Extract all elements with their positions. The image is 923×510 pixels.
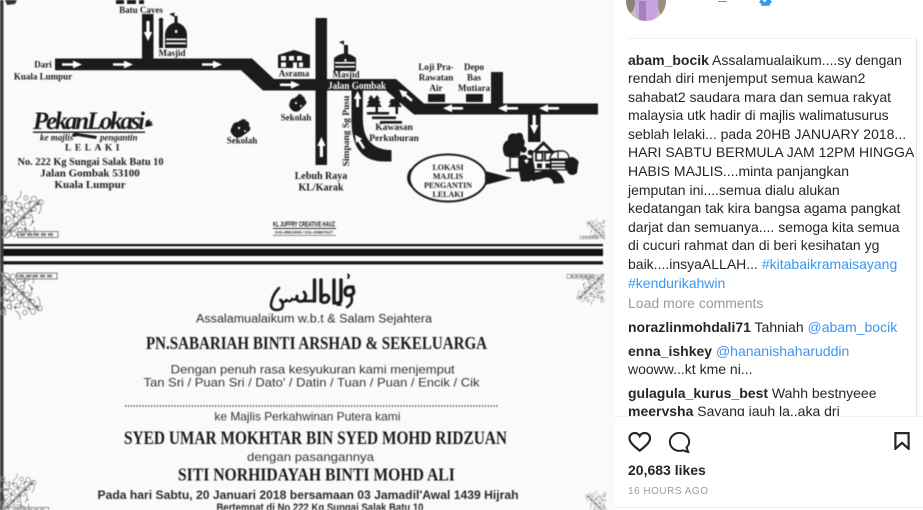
svg-text:Depo: Depo bbox=[464, 62, 484, 72]
svg-text:Jalan Gombak: Jalan Gombak bbox=[328, 81, 386, 92]
svg-text:Masjid: Masjid bbox=[333, 70, 360, 80]
svg-text:Loji Pra-: Loji Pra- bbox=[418, 62, 453, 72]
svg-text:ke Majlis Perkahwinan Putera k: ke Majlis Perkahwinan Putera kami bbox=[214, 410, 400, 424]
svg-text:Air: Air bbox=[430, 83, 443, 93]
svg-text:Rawatan: Rawatan bbox=[419, 73, 454, 83]
svg-text:KL/Karak: KL/Karak bbox=[298, 183, 343, 194]
svg-text:PN.SABARIAH BINTI ARSHAD & SEK: PN.SABARIAH BINTI ARSHAD & SEKELUARGA bbox=[146, 333, 487, 353]
svg-text:SYED UMAR MOKHTAR BIN SYED MOH: SYED UMAR MOKHTAR BIN SYED MOHD RIDZUAN bbox=[124, 428, 507, 449]
svg-text:Mutiara: Mutiara bbox=[458, 83, 490, 93]
svg-text:dengan pasangannya: dengan pasangannya bbox=[247, 450, 374, 464]
svg-text:Kuala Lumpur: Kuala Lumpur bbox=[14, 72, 72, 82]
svg-text:SITI NORHIDAYAH BINTI MOHD ALI: SITI NORHIDAYAH BINTI MOHD ALI bbox=[178, 465, 455, 485]
svg-text:013-4561008 / 011-23867627: 013-4561008 / 011-23867627 bbox=[275, 230, 334, 235]
svg-text:Lebuh Raya: Lebuh Raya bbox=[295, 171, 348, 182]
svg-text:Bas: Bas bbox=[467, 73, 482, 83]
svg-text:LELAKI: LELAKI bbox=[65, 144, 123, 154]
svg-text:Dengan penuh rasa kesyukuran k: Dengan penuh rasa kesyukuran kami menjem… bbox=[171, 363, 456, 377]
svg-text:ke majlis: ke majlis bbox=[40, 133, 74, 143]
svg-text:pengantin: pengantin bbox=[99, 133, 138, 143]
svg-text:KL JUFFRY CREATIVE HAUZ: KL JUFFRY CREATIVE HAUZ bbox=[273, 220, 335, 229]
svg-text:Dari: Dari bbox=[34, 60, 52, 70]
svg-text:Assalamualaikum w.b.t & Salam: Assalamualaikum w.b.t & Salam Sejahtera bbox=[196, 314, 433, 326]
svg-text:Asrama: Asrama bbox=[279, 69, 310, 79]
svg-text:Tan Sri / Puan Sri / Dato' / D: Tan Sri / Puan Sri / Dato' / Datin / Tua… bbox=[144, 376, 481, 390]
svg-text:Bertempat di No 222 Kg Sungai: Bertempat di No 222 Kg Sungai Salak Batu… bbox=[217, 502, 424, 510]
svg-text:Simpang Sg Pusu: Simpang Sg Pusu bbox=[342, 95, 352, 166]
svg-text:Jalan Gombak 53100: Jalan Gombak 53100 bbox=[40, 168, 140, 180]
svg-text:Masjid: Masjid bbox=[159, 48, 186, 58]
svg-text:PENGANTIN: PENGANTIN bbox=[424, 181, 472, 190]
svg-text:MAJLIS: MAJLIS bbox=[433, 172, 464, 181]
svg-text:LOKASI: LOKASI bbox=[432, 163, 463, 172]
svg-text:Batu Caves: Batu Caves bbox=[119, 5, 163, 15]
svg-text:Perkuburan: Perkuburan bbox=[369, 134, 419, 144]
svg-text:Pada hari Sabtu, 20 Januari 20: Pada hari Sabtu, 20 Januari 2018 bersama… bbox=[98, 488, 519, 502]
svg-text:No. 222 Kg Sungai Salak Batu 1: No. 222 Kg Sungai Salak Batu 10 bbox=[18, 156, 164, 168]
svg-text:LELAKI: LELAKI bbox=[432, 190, 463, 199]
svg-text:PekanLokasi: PekanLokasi bbox=[32, 108, 145, 135]
svg-text:Kuala Lumpur: Kuala Lumpur bbox=[54, 179, 125, 191]
svg-text:Sekolah: Sekolah bbox=[227, 136, 258, 146]
svg-text:Kawasan: Kawasan bbox=[375, 123, 413, 133]
svg-text:Sekolah: Sekolah bbox=[281, 113, 312, 123]
